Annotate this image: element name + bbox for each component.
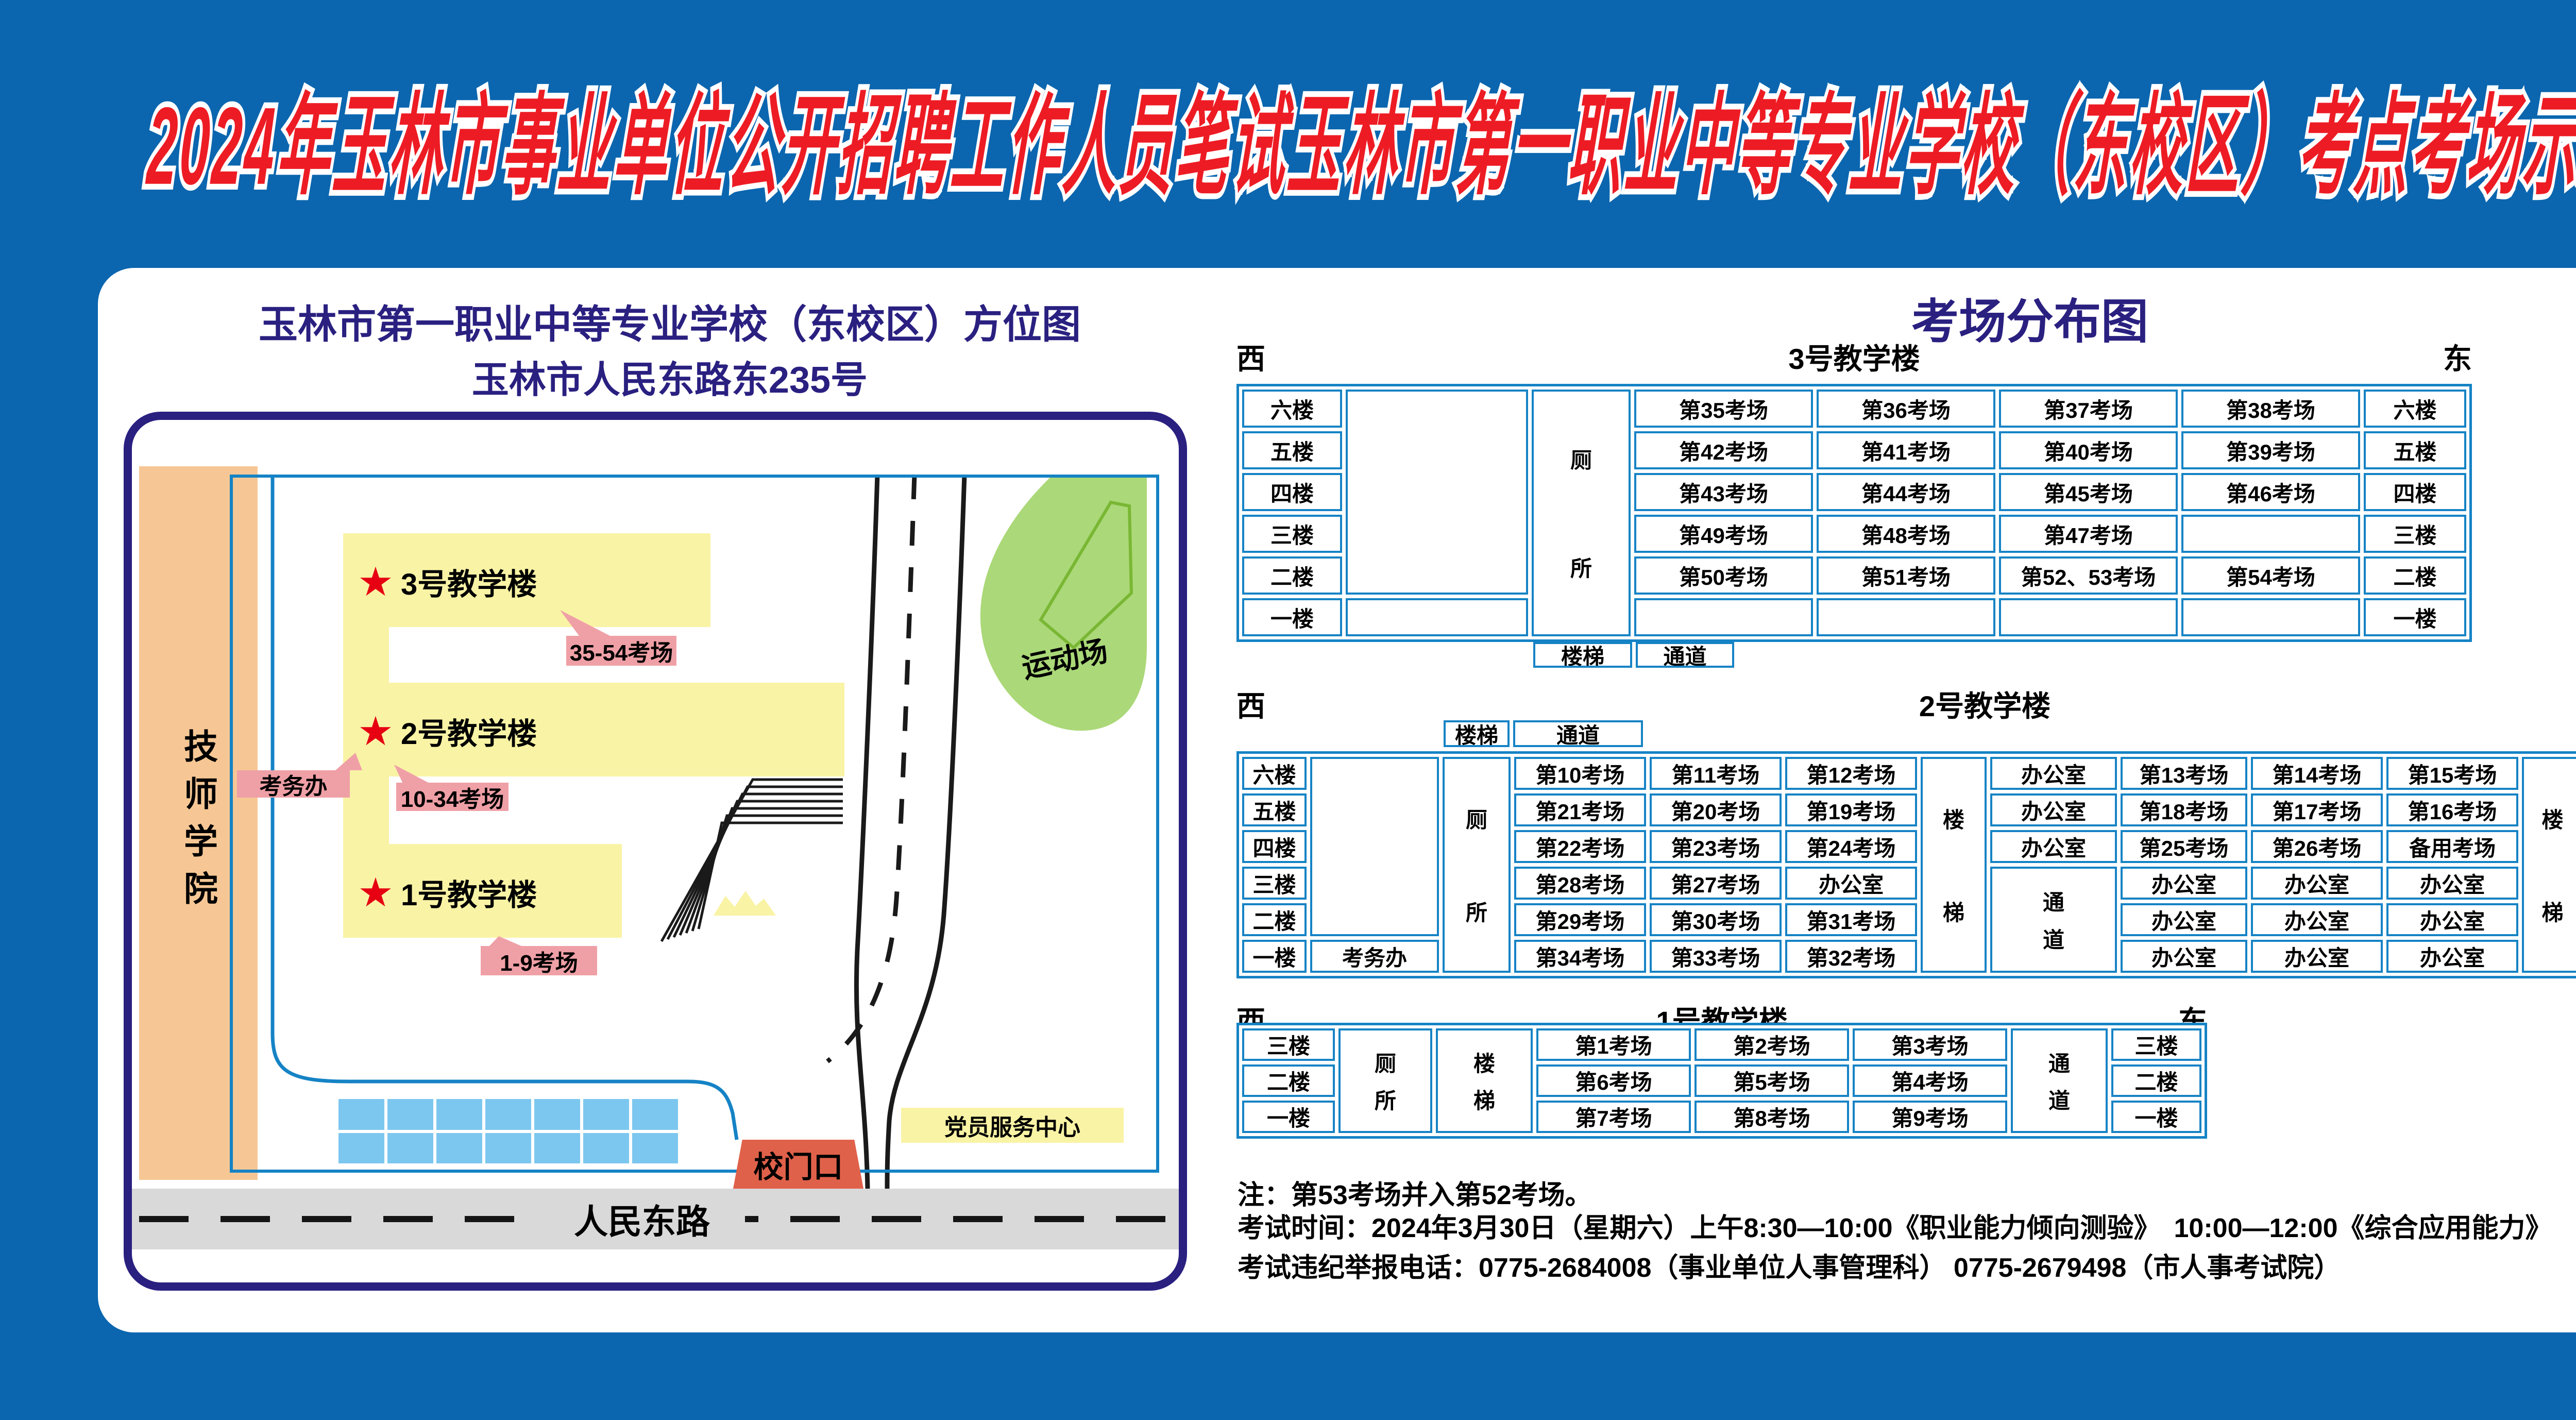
- floor-cell: 一楼: [2111, 1101, 2201, 1133]
- office-cell: 办公室: [2121, 867, 2247, 900]
- parking-cell: [583, 1133, 629, 1164]
- building-3-stair-passage: 楼梯 通道: [1533, 642, 1734, 668]
- passage-cell: 通 道: [2011, 1028, 2108, 1133]
- floor-cell: 二楼: [1242, 1064, 1335, 1097]
- room-cell: 第47考场: [1999, 515, 2178, 553]
- toilet-cell: 厕 所: [1338, 1028, 1432, 1133]
- building-2-table-title: 2号教学楼: [1919, 683, 2050, 725]
- callout-rooms-1-9: 1-9考场: [481, 946, 597, 975]
- room-cell: 第34考场: [1514, 940, 1646, 973]
- room-cell: 第17考场: [2251, 793, 2383, 826]
- parking-cell: [387, 1133, 433, 1164]
- room-cell: 第19考场: [1785, 793, 1917, 826]
- room-cell: [1634, 598, 1813, 636]
- room-cell: 第44考场: [1817, 473, 1995, 511]
- building-3-table-title: 3号教学楼: [1788, 336, 1920, 378]
- room-cell: 第22考场: [1514, 830, 1646, 863]
- room-cell: 第27考场: [1650, 867, 1782, 900]
- building-3-table-header: 西 3号教学楼 东: [1236, 336, 2472, 378]
- passage-char: 通: [2043, 885, 2064, 917]
- office-cell: 办公室: [2386, 867, 2518, 900]
- parking-cell: [338, 1133, 384, 1164]
- floor-cell: 五楼: [2364, 431, 2466, 469]
- west-label: 西: [1236, 336, 1265, 378]
- room-cell: 第13考场: [2121, 757, 2247, 790]
- callout-exam-office: 考务办: [237, 770, 350, 798]
- floor-cell: 四楼: [2364, 473, 2466, 511]
- room-cell: 第9考场: [1853, 1101, 2007, 1133]
- floor-cell: 六楼: [1242, 757, 1307, 790]
- room-cell: 第30考场: [1650, 903, 1782, 936]
- room-cell: 第3考场: [1853, 1028, 2007, 1061]
- room-cell: 第12考场: [1785, 757, 1917, 790]
- parking-cell: [583, 1099, 629, 1130]
- room-cell: 第4考场: [1853, 1064, 2007, 1097]
- floor-cell: 二楼: [1242, 903, 1307, 936]
- room-cell: [2181, 515, 2360, 553]
- page-title: 2024年玉林市事业单位公开招聘工作人员笔试玉林市第一职业中等专业学校（东校区）…: [0, 36, 2576, 258]
- floor-cell: 六楼: [1242, 390, 1342, 428]
- room-cell: 第1考场: [1536, 1028, 1691, 1061]
- floor-cell: 三楼: [2111, 1028, 2201, 1061]
- room-cell: 第37考场: [1999, 390, 2178, 428]
- note-exam-time: 考试时间：2024年3月30日（星期六）上午8:30—10:00《职业能力倾向测…: [1238, 1206, 2552, 1245]
- parking-cell: [436, 1133, 482, 1164]
- callout-pointer: [560, 610, 610, 636]
- room-cell: 第49考场: [1634, 515, 1813, 553]
- callout-pointer: [335, 753, 362, 770]
- toilet-char: 厕: [1466, 803, 1487, 834]
- parking-grid: [338, 1099, 678, 1163]
- content-panel: 玉林市第一职业中等专业学校（东校区）方位图 玉林市人民东路东235号: [98, 268, 2576, 1332]
- office-cell: 办公室: [2121, 940, 2247, 973]
- stair-cell: 楼 梯: [2522, 757, 2576, 973]
- room-cell: 第11考场: [1650, 757, 1782, 790]
- room-cell: 第18考场: [2121, 793, 2247, 826]
- room-cell: 第33考场: [1650, 940, 1782, 973]
- room-cell: 第8考场: [1694, 1101, 1849, 1133]
- room-cell: 第42考场: [1634, 431, 1813, 469]
- parking-cell: [387, 1099, 433, 1130]
- room-cell: 第54考场: [2181, 556, 2360, 595]
- map-title-line2: 玉林市人民东路东235号: [232, 349, 1108, 403]
- parking-cell: [485, 1133, 531, 1164]
- empty-cell: [1310, 757, 1439, 936]
- empty-cell: [1346, 598, 1528, 636]
- room-cell: 第32考场: [1785, 940, 1917, 973]
- floor-cell: 三楼: [1242, 515, 1342, 553]
- room-cell: 第46考场: [2181, 473, 2360, 511]
- room-cell: 第28考场: [1514, 867, 1646, 900]
- room-cell: 第15考场: [2386, 757, 2518, 790]
- floor-cell: 一楼: [1242, 1101, 1335, 1133]
- toilet-cell: 厕 所: [1443, 757, 1511, 973]
- stair-cell: 楼 梯: [1921, 757, 1987, 973]
- toilet-char: 所: [1375, 1084, 1396, 1115]
- room-cell: 第35考场: [1634, 390, 1813, 428]
- room-cell: 第51考场: [1817, 556, 1995, 595]
- room-cell: 第29考场: [1514, 903, 1646, 936]
- floor-cell: 三楼: [2364, 515, 2466, 553]
- room-cell: 第36考场: [1817, 390, 1995, 428]
- stair-cell: 楼梯: [1533, 642, 1632, 668]
- room-cell: 第41考场: [1817, 431, 1995, 469]
- east-label: 东: [2443, 336, 2472, 378]
- toilet-char: 厕: [1570, 443, 1592, 475]
- room-cell: 第45考场: [1999, 473, 2178, 511]
- location-map: 技师学院 ★ 3号教学楼 ★ 2号教学楼 ★ 1号教学楼: [124, 412, 1187, 1291]
- building-1-table: 三楼 厕 所 楼 梯 第1考场 第2考场 第3考场 通 道 三楼 二楼 第6考场…: [1236, 1023, 2207, 1139]
- room-cell: 第5考场: [1694, 1064, 1849, 1097]
- floor-cell: 二楼: [2111, 1064, 2201, 1097]
- office-cell: 办公室: [1990, 793, 2117, 826]
- room-cell: 第14考场: [2251, 757, 2383, 790]
- map-title-line1: 玉林市第一职业中等专业学校（东校区）方位图: [232, 293, 1108, 349]
- callout-rooms-10-34: 10-34考场: [396, 783, 509, 811]
- toilet-char: 所: [1570, 551, 1592, 583]
- toilet-char: 厕: [1375, 1046, 1396, 1078]
- room-cell: 第6考场: [1536, 1064, 1691, 1097]
- room-cell: 第7考场: [1536, 1101, 1691, 1133]
- stair-char: 梯: [1943, 895, 1964, 927]
- floor-cell: 四楼: [1242, 473, 1342, 511]
- office-cell: 办公室: [2251, 903, 2383, 936]
- room-cell: 第2考场: [1694, 1028, 1849, 1061]
- floor-cell: 二楼: [2364, 556, 2466, 595]
- school-gate: 校门口: [733, 1140, 863, 1189]
- building-2-table: 六楼 厕 所 第10考场 第11考场 第12考场 楼 梯 办公室 第13考场 第…: [1236, 751, 2576, 978]
- floor-cell: 四楼: [1242, 830, 1307, 863]
- office-cell: 办公室: [2386, 940, 2518, 973]
- callout-rooms-35-54: 35-54考场: [566, 636, 676, 666]
- parking-cell: [485, 1099, 531, 1130]
- parking-cell: [534, 1099, 580, 1130]
- stair-cell: 楼 梯: [1436, 1028, 1533, 1133]
- exam-office-cell: 考务办: [1310, 940, 1439, 973]
- room-cell: 第23考场: [1650, 830, 1782, 863]
- stair-char: 楼: [2541, 803, 2563, 834]
- empty-cell: [1346, 390, 1528, 595]
- parking-cell: [534, 1133, 580, 1164]
- room-cell: [1999, 598, 2178, 636]
- stair-char: 梯: [2541, 895, 2563, 927]
- building-2-stair-passage: 楼梯 通道: [1444, 720, 1643, 747]
- room-cell: 第48考场: [1817, 515, 1995, 553]
- passage-char: 通: [2048, 1046, 2070, 1078]
- stair-cell: 楼梯: [1444, 720, 1510, 747]
- room-cell: 第24考场: [1785, 830, 1917, 863]
- room-cell: [1817, 598, 1995, 636]
- room-cell: 第43考场: [1634, 473, 1813, 511]
- floor-cell: 一楼: [2364, 598, 2466, 636]
- room-cell: 第52、53考场: [1999, 556, 2178, 595]
- street-name: 人民东路: [539, 1198, 745, 1240]
- room-cell: 备用考场: [2386, 830, 2518, 863]
- office-cell: 办公室: [1785, 867, 1917, 900]
- parking-cell: [436, 1099, 482, 1130]
- floor-cell: 三楼: [1242, 867, 1307, 900]
- floor-cell: 一楼: [1242, 598, 1342, 636]
- room-cell: 第39考场: [2181, 431, 2360, 469]
- note-report-phone: 考试违纪举报电话：0775-2684008（事业单位人事管理科） 0775-26…: [1238, 1246, 2341, 1284]
- floor-cell: 六楼: [2364, 390, 2466, 428]
- office-cell: 办公室: [2251, 867, 2383, 900]
- parking-cell: [338, 1099, 384, 1130]
- toilet-char: 所: [1466, 895, 1487, 927]
- floor-cell: 二楼: [1242, 556, 1342, 595]
- room-cell: 第31考场: [1785, 903, 1917, 936]
- room-cell: 第20考场: [1650, 793, 1782, 826]
- passage-char: 道: [2043, 923, 2064, 954]
- room-cell: [2181, 598, 2360, 636]
- floor-cell: 三楼: [1242, 1028, 1335, 1061]
- passage-cell: 通 道: [1990, 867, 2117, 973]
- room-cell: 第25考场: [2121, 830, 2247, 863]
- passage-cell: 通道: [1636, 642, 1734, 668]
- floor-cell: 一楼: [1242, 940, 1307, 973]
- office-cell: 办公室: [2121, 903, 2247, 936]
- west-label: 西: [1236, 683, 1265, 725]
- room-cell: 第10考场: [1514, 757, 1646, 790]
- office-cell: 办公室: [2386, 903, 2518, 936]
- poster: 2024年玉林市事业单位公开招聘工作人员笔试玉林市第一职业中等专业学校（东校区）…: [0, 0, 2576, 1420]
- building-3-table: 六楼 厕 所 第35考场 第36考场 第37考场 第38考场 六楼 五楼 第42…: [1236, 384, 2472, 642]
- office-cell: 办公室: [1990, 830, 2117, 863]
- stair-char: 楼: [1943, 803, 1964, 834]
- room-cell: 第50考场: [1634, 556, 1813, 595]
- stair-char: 楼: [1473, 1046, 1495, 1078]
- parking-cell: [632, 1133, 678, 1164]
- passage-char: 道: [2048, 1084, 2070, 1115]
- floor-cell: 五楼: [1242, 793, 1307, 826]
- passage-cell: 通道: [1513, 720, 1643, 747]
- toilet-cell: 厕 所: [1532, 390, 1631, 636]
- stair-char: 梯: [1473, 1084, 1495, 1115]
- building-2-table-header: 西 2号教学楼 东: [1236, 683, 2576, 725]
- party-service-center: 党员服务中心: [901, 1108, 1124, 1143]
- room-cell: 第40考场: [1999, 431, 2178, 469]
- office-cell: 办公室: [2251, 940, 2383, 973]
- room-cell: 第26考场: [2251, 830, 2383, 863]
- room-cell: 第38考场: [2181, 390, 2360, 428]
- room-cell: 第21考场: [1514, 793, 1646, 826]
- floor-cell: 五楼: [1242, 431, 1342, 469]
- office-cell: 办公室: [1990, 757, 2117, 790]
- room-cell: 第16考场: [2386, 793, 2518, 826]
- parking-cell: [632, 1099, 678, 1130]
